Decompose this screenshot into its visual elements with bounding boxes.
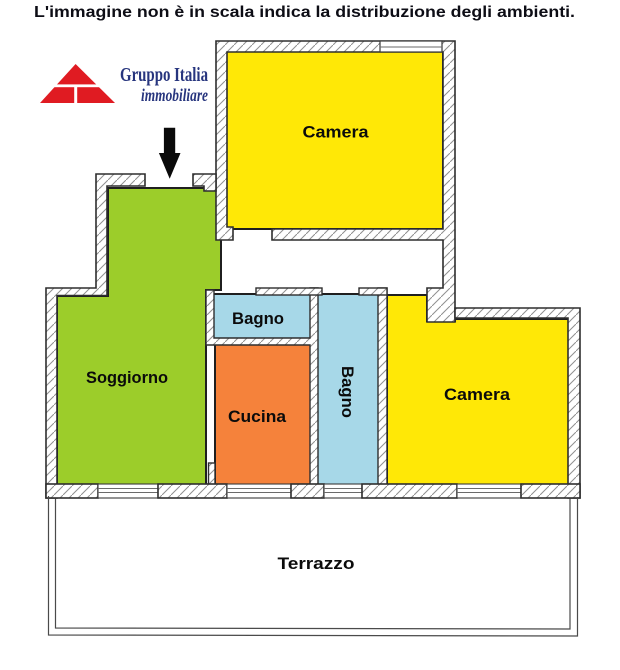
svg-text:Camera: Camera xyxy=(444,385,511,404)
svg-text:Soggiorno: Soggiorno xyxy=(86,368,168,387)
svg-text:Cucina: Cucina xyxy=(228,407,287,426)
svg-text:Camera: Camera xyxy=(303,123,370,142)
svg-text:Bagno: Bagno xyxy=(338,366,357,418)
svg-text:Terrazzo: Terrazzo xyxy=(278,554,355,573)
svg-text:L'immagine non è in scala indi: L'immagine non è in scala indica la dist… xyxy=(34,4,575,21)
svg-text:Bagno: Bagno xyxy=(232,309,284,328)
svg-text:Gruppo Italia: Gruppo Italia xyxy=(120,64,208,86)
svg-text:immobiliare: immobiliare xyxy=(141,85,208,105)
